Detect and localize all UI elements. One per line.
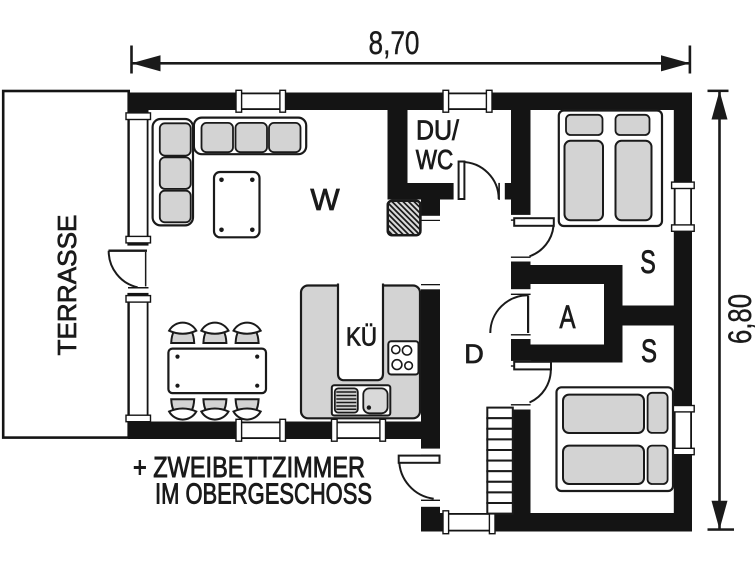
svg-text:TERRASSE: TERRASSE [52, 215, 82, 356]
svg-text:WC: WC [416, 144, 454, 175]
svg-text:W: W [310, 182, 340, 217]
svg-text:S: S [640, 244, 656, 280]
svg-text:S: S [641, 333, 657, 369]
svg-text:KÜ: KÜ [346, 322, 377, 352]
svg-text:D: D [464, 339, 484, 369]
svg-text:IM OBERGESCHOSS: IM OBERGESCHOSS [155, 479, 372, 511]
svg-text:8,70: 8,70 [369, 25, 420, 61]
svg-text:A: A [560, 299, 576, 335]
svg-text:6,80: 6,80 [722, 294, 755, 344]
svg-text:DU/: DU/ [416, 115, 459, 146]
